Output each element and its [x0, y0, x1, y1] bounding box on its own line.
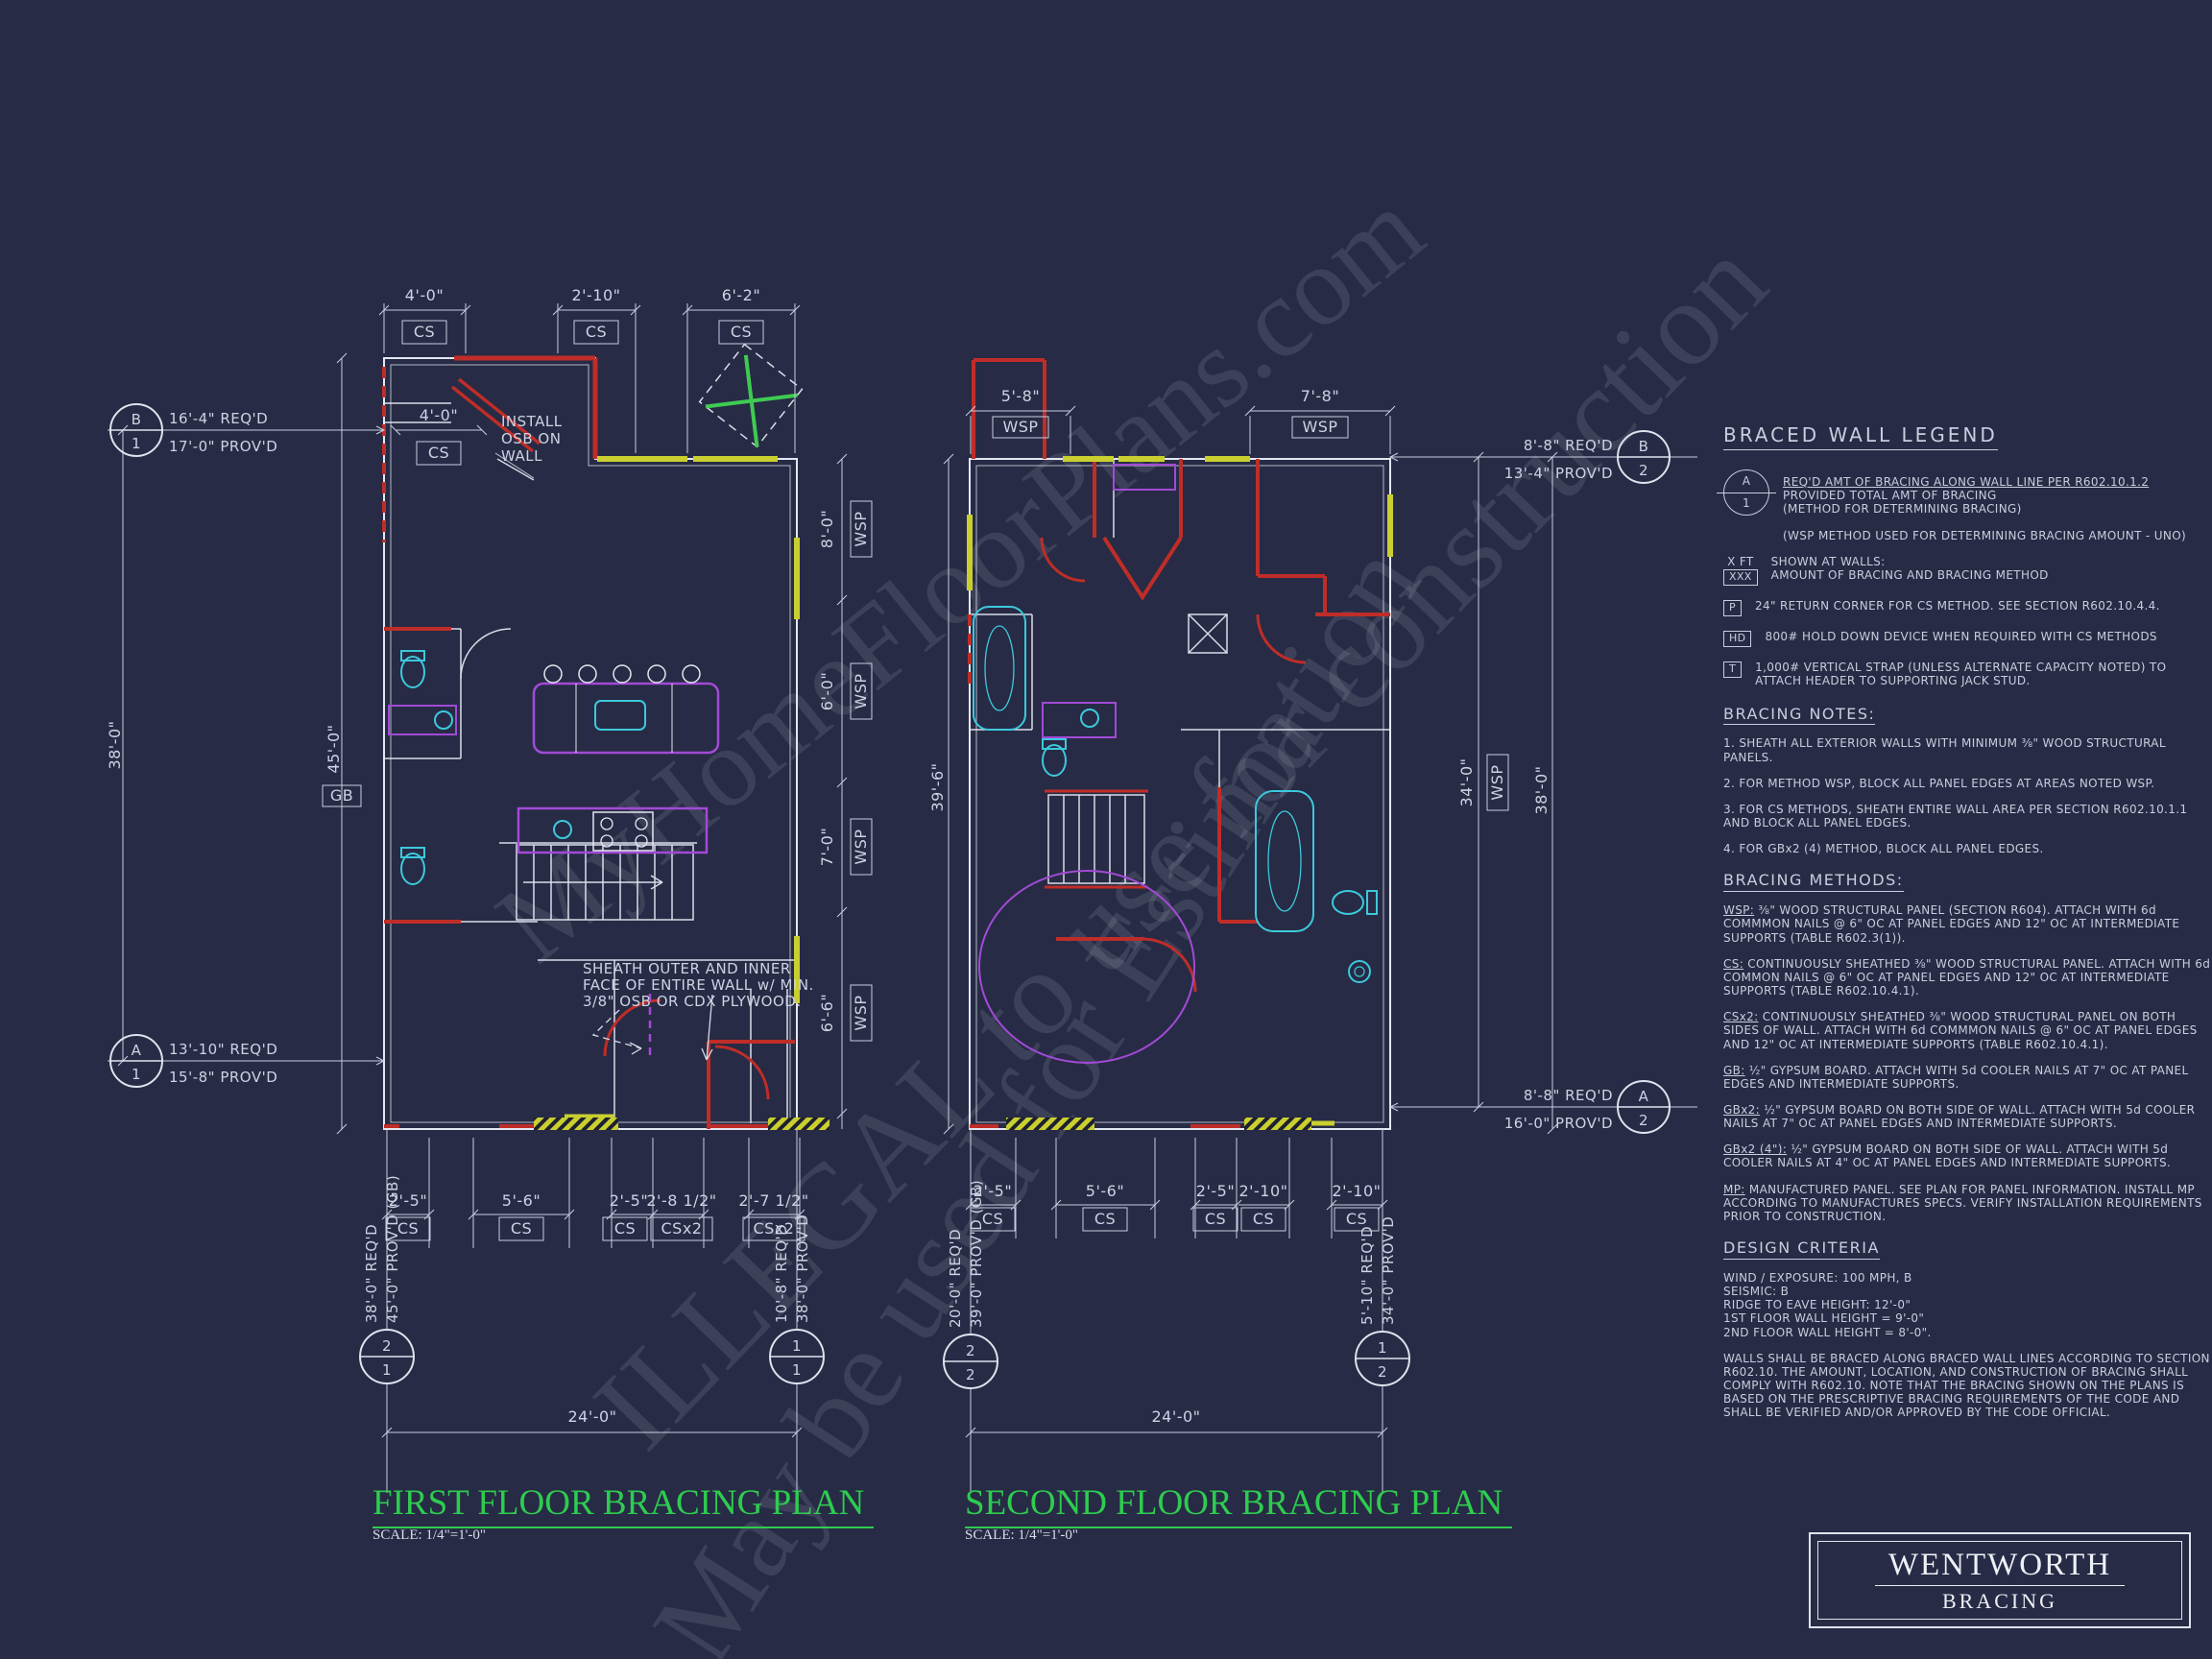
dim-label: 2'-5"	[610, 1191, 648, 1210]
marker-letter: A	[1639, 1088, 1649, 1105]
xxx-box-icon: XXX	[1723, 569, 1758, 586]
note-line: OSB ON	[501, 430, 561, 447]
drawing-sheet: MyHomeFloorPlans.com ILLEGAL to use for …	[0, 0, 2212, 1659]
marker-req: 16'-4" REQ'D	[169, 410, 268, 427]
dim-label: 6'-0"	[818, 672, 836, 710]
marker-req: 13'-10" REQ'D	[169, 1041, 277, 1058]
design-criterion: 1ST FLOOR WALL HEIGHT = 9'-0"	[1723, 1311, 2211, 1325]
first-plan-title: FIRST FLOOR BRACING PLAN	[373, 1482, 874, 1528]
method-key: CS:	[1723, 957, 1743, 971]
first-plan-panel-marker	[700, 345, 803, 447]
dim-label: 5'-8"	[1001, 387, 1040, 405]
legend-item-xft: X FT XXX SHOWN AT WALLS: AMOUNT OF BRACI…	[1723, 555, 2211, 586]
second-plan-bracing-yellow	[970, 459, 1390, 1123]
dim-label: 4'-0"	[405, 286, 444, 304]
method-key: CSx2:	[1723, 1010, 1759, 1023]
method-box: CS	[586, 323, 607, 341]
method-key: MP:	[1723, 1183, 1745, 1196]
legend-text: (METHOD FOR DETERMINING BRACING)	[1783, 502, 2149, 516]
dim-label: 2'-10"	[1238, 1182, 1287, 1200]
legend-text: 24" RETURN CORNER FOR CS METHOD. SEE SEC…	[1755, 599, 2160, 613]
method-text: ½" GYPSUM BOARD ON BOTH SIDE OF WALL. AT…	[1723, 1103, 2195, 1130]
legend-text: REQ'D AMT OF BRACING ALONG WALL LINE PER…	[1783, 475, 2149, 489]
method-box: CSx2	[661, 1219, 703, 1238]
first-plan-dim-lines	[108, 303, 847, 1493]
dim-label: 6'-2"	[722, 286, 760, 304]
marker-req: 20'-0" REQ'D	[947, 1229, 964, 1328]
first-plan-scale: SCALE: 1/4"=1'-0"	[373, 1527, 486, 1544]
dim-label: 2'-7 1/2"	[738, 1191, 808, 1210]
method-box: CS	[414, 323, 435, 341]
dim-label: 38'-0"	[106, 720, 124, 769]
note-line: FACE OF ENTIRE WALL w/ MIN.	[583, 976, 814, 994]
legend-item-wall-line-symbol: A 1 REQ'D AMT OF BRACING ALONG WALL LINE…	[1723, 475, 2211, 516]
symbol-letter: A	[1724, 474, 1768, 488]
legend-item-hold-down: HD 800# HOLD DOWN DEVICE WHEN REQUIRED W…	[1723, 630, 2211, 647]
marker-number: 1	[132, 435, 141, 452]
method-key: GB:	[1723, 1064, 1745, 1077]
design-paragraph: WALLS SHALL BE BRACED ALONG BRACED WALL …	[1723, 1352, 2211, 1420]
marker-number: 1	[382, 1361, 392, 1379]
wall-line-symbol-icon: A 1	[1723, 469, 1769, 516]
title-block: WENTWORTH BRACING	[1809, 1532, 2191, 1628]
legend-text: 800# HOLD DOWN DEVICE WHEN REQUIRED WITH…	[1765, 630, 2156, 643]
note-line: INSTALL	[501, 413, 563, 430]
dim-label: 2'-10"	[571, 286, 620, 304]
method-box: CS	[614, 1219, 636, 1238]
method-box: CS	[1346, 1210, 1367, 1228]
legend-item-vertical-strap: T 1,000# VERTICAL STRAP (UNLESS ALTERNAT…	[1723, 661, 2211, 687]
design-criterion: 2ND FLOOR WALL HEIGHT = 8'-0".	[1723, 1326, 2211, 1339]
bracing-method: GBx2: ½" GYPSUM BOARD ON BOTH SIDE OF WA…	[1723, 1103, 2211, 1130]
dim-label: 34'-0"	[1457, 757, 1476, 806]
bracing-notes-title: BRACING NOTES:	[1723, 706, 1875, 726]
marker-prov: 15'-8" PROV'D	[169, 1069, 277, 1086]
marker-prov: 34'-0" PROV'D	[1380, 1216, 1397, 1325]
divider	[1717, 493, 1776, 493]
legend-text: 1,000# VERTICAL STRAP (UNLESS ALTERNATE …	[1755, 661, 2211, 687]
bracing-method: CS: CONTINUOUSLY SHEATHED ⅜" WOOD STRUCT…	[1723, 957, 2211, 998]
marker-prov: 13'-4" PROV'D	[1504, 465, 1613, 482]
dim-label: 4'-0"	[420, 406, 458, 424]
first-plan-walls	[384, 358, 797, 1129]
first-plan-markers: B 1 16'-4" REQ'D 17'-0" PROV'D A 1 13'-1…	[110, 404, 824, 1383]
legend-title: BRACED WALL LEGEND	[1723, 424, 1998, 450]
second-plan-hatch-brace	[1244, 1118, 1311, 1130]
marker-prov: 45'-0" PROV'D (GB)	[384, 1175, 401, 1323]
second-plan-title: SECOND FLOOR BRACING PLAN	[965, 1482, 1512, 1528]
method-box: WSP	[852, 995, 870, 1030]
second-plan-fixtures	[974, 465, 1377, 1063]
marker-req: 8'-8" REQ'D	[1524, 437, 1613, 454]
second-plan-scale: SCALE: 1/4"=1'-0"	[965, 1527, 1078, 1544]
method-box: WSP	[852, 829, 870, 864]
method-box: CS	[1253, 1210, 1274, 1228]
design-criterion: SEISMIC: B	[1723, 1285, 2211, 1298]
dim-label: 24'-0"	[567, 1407, 616, 1426]
method-box: GB	[330, 786, 353, 805]
method-key: WSP:	[1723, 903, 1754, 917]
bracing-method: MP: MANUFACTURED PANEL. SEE PLAN FOR PAN…	[1723, 1183, 2211, 1223]
method-text: CONTINUOUSLY SHEATHED ⅜" WOOD STRUCTURAL…	[1723, 1010, 2198, 1050]
dim-label: 2'-10"	[1332, 1182, 1381, 1200]
method-box: CS	[428, 444, 449, 462]
dim-label: 8'-0"	[818, 510, 836, 548]
bracing-note: 3. FOR CS METHODS, SHEATH ENTIRE WALL AR…	[1723, 803, 2211, 829]
method-text: ⅜" WOOD STRUCTURAL PANEL (SECTION R604).…	[1723, 903, 2179, 944]
marker-req: 8'-8" REQ'D	[1524, 1087, 1613, 1104]
bracing-methods-title: BRACING METHODS:	[1723, 872, 1904, 892]
legend-text: PROVIDED TOTAL AMT OF BRACING	[1783, 489, 2149, 502]
bracing-note: 1. SHEATH ALL EXTERIOR WALLS WITH MINIMU…	[1723, 736, 2211, 763]
first-plan-fixtures	[401, 651, 452, 884]
method-box: WSP	[1002, 418, 1038, 436]
dim-label: 7'-0"	[818, 828, 836, 866]
legend-wsp-note: (WSP METHOD USED FOR DETERMINING BRACING…	[1783, 529, 2211, 542]
design-criterion: RIDGE TO EAVE HEIGHT: 12'-0"	[1723, 1298, 2211, 1311]
method-box: CS	[1094, 1210, 1116, 1228]
xft-label: X FT	[1723, 555, 1758, 568]
note-line: WALL	[501, 447, 542, 465]
dim-label: 5'-6"	[502, 1191, 541, 1210]
marker-number: 2	[1639, 1112, 1648, 1129]
marker-req: 10'-8" REQ'D	[773, 1224, 790, 1323]
bracing-method: CSx2: CONTINUOUSLY SHEATHED ⅜" WOOD STRU…	[1723, 1010, 2211, 1050]
note-line: SHEATH OUTER AND INNER	[583, 960, 791, 977]
symbol-number: 1	[1724, 496, 1768, 510]
method-box: WSP	[852, 673, 870, 709]
t-box-icon: T	[1723, 661, 1742, 678]
legend-text: AMOUNT OF BRACING AND BRACING METHOD	[1771, 568, 2049, 582]
sheet-name: BRACING	[1942, 1589, 2057, 1614]
dim-label: 7'-8"	[1301, 387, 1339, 405]
marker-letter: 2	[382, 1337, 392, 1355]
bracing-note: 4. FOR GBx2 (4) METHOD, BLOCK ALL PANEL …	[1723, 842, 2211, 855]
method-key: GBx2:	[1723, 1103, 1760, 1117]
marker-number: 2	[1639, 462, 1648, 479]
bracing-method: WSP: ⅜" WOOD STRUCTURAL PANEL (SECTION R…	[1723, 903, 2211, 944]
marker-req: 38'-0" REQ'D	[363, 1224, 380, 1323]
marker-number: 1	[132, 1066, 141, 1083]
second-plan-walls	[970, 459, 1390, 1129]
design-criterion: WIND / EXPOSURE: 100 MPH, B	[1723, 1271, 2211, 1285]
method-text: ½" GYPSUM BOARD. ATTACH WITH 5d COOLER N…	[1723, 1064, 2189, 1091]
method-box: CS	[731, 323, 752, 341]
second-plan-dim-text: 5'-8" WSP 7'-8" WSP 39'-6" 34'-0" WSP 38…	[928, 387, 1551, 1426]
marker-letter: 2	[966, 1342, 975, 1359]
p-box-icon: P	[1723, 600, 1742, 616]
marker-req: 5'-10" REQ'D	[1358, 1226, 1376, 1325]
marker-prov: 17'-0" PROV'D	[169, 438, 277, 455]
method-text: ½" GYPSUM BOARD ON BOTH SIDE OF WALL. AT…	[1723, 1142, 2171, 1169]
project-name: WENTWORTH	[1875, 1548, 2125, 1586]
marker-number: 2	[1378, 1363, 1387, 1381]
hd-box-icon: HD	[1723, 631, 1751, 647]
marker-letter: B	[1639, 438, 1649, 455]
method-box: WSP	[1302, 418, 1337, 436]
marker-prov: 16'-0" PROV'D	[1504, 1115, 1613, 1132]
dim-label: 2'-8 1/2"	[646, 1191, 716, 1210]
legend-item-return-corner: P 24" RETURN CORNER FOR CS METHOD. SEE S…	[1723, 599, 2211, 616]
dim-label: 2'-5"	[1196, 1182, 1235, 1200]
first-plan-bracing-red	[384, 358, 795, 1129]
dim-label: 39'-6"	[928, 762, 947, 811]
first-plan-hatch-brace	[768, 1118, 829, 1130]
note-line: 3/8" OSB OR CDX PLYWOOD.	[583, 993, 802, 1010]
dim-label: 38'-0"	[1532, 765, 1551, 814]
marker-prov: 39'-0" PROV'D (GB)	[968, 1180, 985, 1328]
method-box: CS	[1205, 1210, 1226, 1228]
title-block-inner: WENTWORTH BRACING	[1817, 1541, 2182, 1620]
marker-number: 1	[792, 1361, 802, 1379]
method-box: CS	[511, 1219, 532, 1238]
marker-letter: 1	[1378, 1339, 1387, 1357]
marker-letter: 1	[792, 1337, 802, 1355]
dim-label: 24'-0"	[1151, 1407, 1200, 1426]
bracing-note: 2. FOR METHOD WSP, BLOCK ALL PANEL EDGES…	[1723, 777, 2211, 790]
method-box: WSP	[1488, 764, 1506, 800]
dim-label: 5'-6"	[1086, 1182, 1124, 1200]
dim-label: 6'-6"	[818, 994, 836, 1032]
method-text: CONTINUOUSLY SHEATHED ⅜" WOOD STRUCTURAL…	[1723, 957, 2210, 998]
marker-letter: A	[132, 1042, 142, 1059]
bracing-method: GBx2 (4"): ½" GYPSUM BOARD ON BOTH SIDE …	[1723, 1142, 2211, 1169]
legend-text: SHOWN AT WALLS:	[1771, 555, 2049, 568]
braced-wall-legend: BRACED WALL LEGEND A 1 REQ'D AMT OF BRAC…	[1723, 424, 2211, 1432]
second-plan-hatch-brace	[1006, 1118, 1094, 1130]
bracing-method: GB: ½" GYPSUM BOARD. ATTACH WITH 5d COOL…	[1723, 1064, 2211, 1091]
marker-number: 2	[966, 1366, 975, 1383]
method-text: MANUFACTURED PANEL. SEE PLAN FOR PANEL I…	[1723, 1183, 2202, 1223]
marker-prov: 38'-0" PROV'D	[794, 1214, 811, 1323]
method-box: WSP	[852, 511, 870, 546]
first-plan-bracing-yellow	[565, 459, 797, 1117]
dim-label: 45'-0"	[325, 724, 343, 773]
first-plan-hatch-brace	[534, 1118, 618, 1130]
method-box: CS	[982, 1210, 1003, 1228]
design-criteria-title: DESIGN CRITERIA	[1723, 1239, 1880, 1260]
method-key: GBx2 (4"):	[1723, 1142, 1787, 1156]
second-plan-bracing-red	[970, 360, 1390, 1126]
marker-letter: B	[132, 411, 142, 428]
